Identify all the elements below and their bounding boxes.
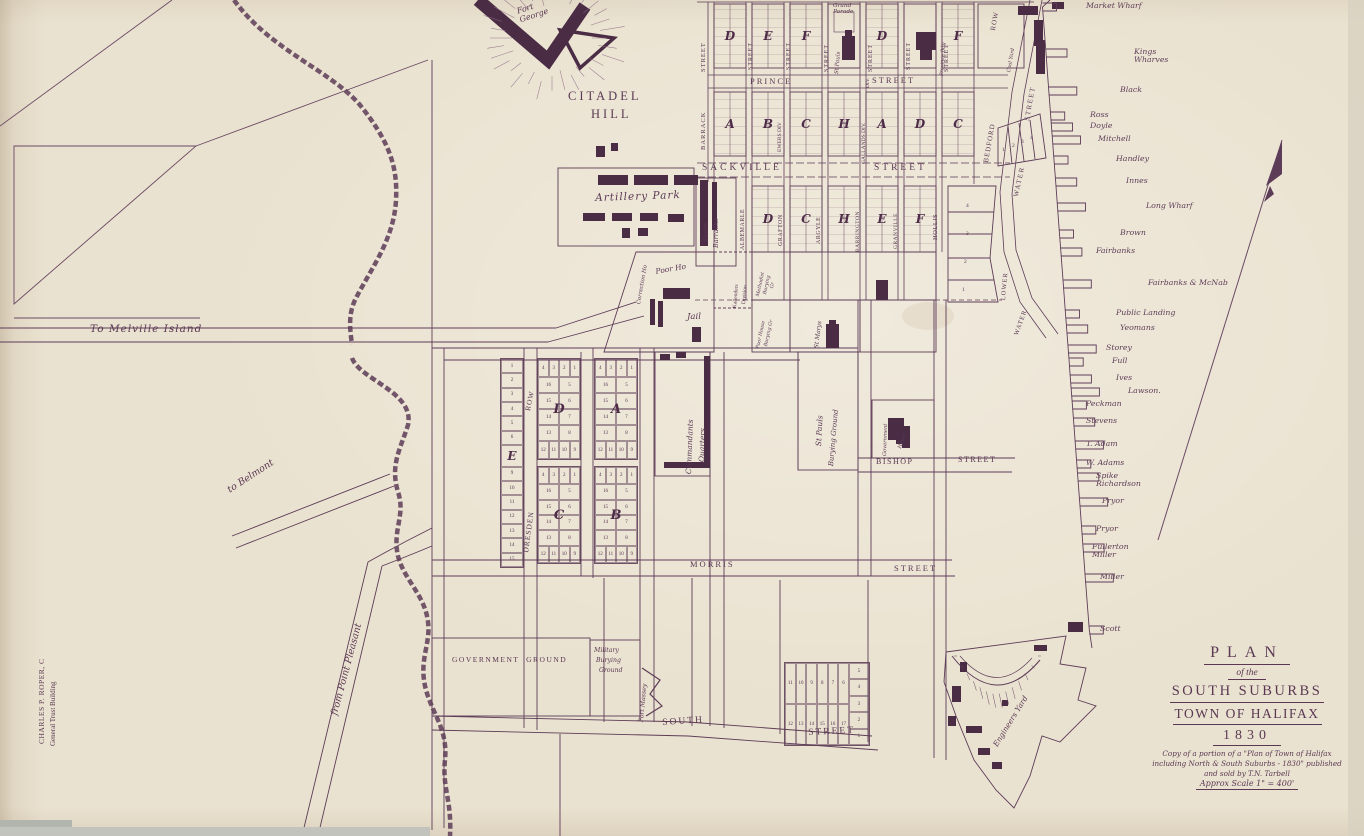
block-letter: H [837, 212, 850, 226]
wharf-pier [1080, 498, 1108, 506]
block-letter: B [762, 117, 773, 131]
glacis-hatch-line [602, 55, 624, 62]
title-block: PLAN of the SOUTH SUBURBS TOWN OF HALIFA… [1138, 644, 1356, 793]
glacis-hatch-line [511, 63, 521, 71]
roads [0, 60, 1015, 836]
glacis-hatch-line [537, 81, 541, 99]
block-letter: A [724, 117, 734, 131]
block-letter: D [876, 29, 888, 43]
wharf-pier [1071, 388, 1099, 396]
glacis-hatch-line [591, 19, 609, 25]
battery-hatch-line [999, 694, 1002, 708]
glacis-hatch-line [540, 0, 544, 6]
citadel-fort [478, 0, 625, 99]
battery-hatch-line [1012, 687, 1015, 699]
field-boundaries [0, 0, 428, 318]
glacis-hatch-line [511, 73, 523, 87]
wharf-pier [1061, 248, 1082, 256]
block-letter: C [801, 212, 811, 226]
north-arrow [1158, 140, 1282, 540]
battery-hatch-line [973, 681, 976, 690]
glacis-hatch-line [487, 46, 504, 49]
wharf-pier [1069, 358, 1083, 366]
glacis-hatch-line [600, 26, 625, 30]
wharf-pier [1085, 574, 1113, 582]
wharf-pier [1046, 49, 1067, 57]
block-letter: C [801, 117, 811, 131]
block-letter: F [915, 212, 926, 226]
map-canvas: DEFDFABCHADCDCHEF 4321165156147138121110… [0, 0, 1364, 836]
wharf-pier [1067, 325, 1088, 333]
battery-hatch-line [1025, 674, 1028, 681]
title-note-2: including North & South Suburbs - 1830" … [1152, 759, 1342, 768]
glacis-hatch-line [560, 70, 565, 90]
wharf-pier [1077, 460, 1091, 468]
glacis-hatch-line [503, 0, 516, 9]
block-letter: D [762, 212, 774, 226]
block-letter: F [801, 29, 812, 43]
shoreline-wharves [1043, 0, 1114, 648]
title-note-3: and sold by T.N. Tarbell [1204, 769, 1290, 778]
block-letter: H [837, 117, 850, 131]
glacis-hatch-line [527, 0, 533, 1]
title-town: TOWN OF HALIFAX [1173, 706, 1322, 725]
title-note-1: Copy of a portion of a "Plan of Town of … [1162, 749, 1331, 758]
wharf-pier [1068, 345, 1096, 353]
wharf-pier [1049, 87, 1077, 95]
title-plan: PLAN [1204, 644, 1290, 665]
title-suburbs: SOUTH SUBURBS [1170, 683, 1325, 703]
battery-hatch-line [986, 692, 989, 705]
battery-hatch-line [980, 687, 983, 699]
wharf-pier [1075, 441, 1103, 449]
battery-hatch-line [993, 694, 996, 708]
wharf-pier [1070, 375, 1091, 383]
wharf-pier [1082, 526, 1096, 534]
wharf-pier [1052, 123, 1073, 131]
title-year: 1830 [1213, 728, 1281, 746]
wharf-pier [1066, 310, 1080, 318]
title-of-the: of the [1228, 668, 1265, 680]
block-letter: D [914, 117, 926, 131]
block-letter: C [953, 117, 963, 131]
wharf-pier [1083, 544, 1104, 552]
glacis-hatch-line [571, 75, 579, 90]
glacis-hatch-line [589, 58, 603, 66]
glacis-hatch-line [528, 72, 534, 84]
glacis-hatch-line [491, 51, 513, 58]
glacis-hatch-line [494, 61, 510, 69]
glacis-hatch-line [570, 0, 579, 4]
wharf-pier [1060, 230, 1074, 238]
wharf-pier [1053, 136, 1081, 144]
wharf-pier [1058, 203, 1086, 211]
coastline [1043, 0, 1093, 648]
block-letter: E [762, 29, 773, 43]
glacis-hatch-line [515, 0, 528, 9]
stream [234, 0, 450, 836]
glacis-hatch-line [581, 0, 590, 3]
block-letter: E [876, 212, 887, 226]
battery-hatch-line [967, 674, 970, 681]
battery-hatch-line [1019, 681, 1022, 690]
wharf-pier [1074, 418, 1095, 426]
wharf-pier [1056, 178, 1077, 186]
wharf-pier [1078, 473, 1099, 481]
wharf-pier [1089, 626, 1103, 634]
block-letter: F [953, 29, 964, 43]
wharf-pier [1072, 401, 1086, 409]
wharf-pier [1063, 280, 1091, 288]
block-letter: D [724, 29, 736, 43]
title-scale: Approx Scale 1" = 400' [1196, 779, 1298, 790]
glacis-hatch-line [594, 9, 606, 16]
glacis-hatch-line [589, 67, 605, 79]
wharf-pier [1054, 156, 1068, 164]
block-letter: A [876, 117, 886, 131]
wharf-pier [1051, 112, 1065, 120]
